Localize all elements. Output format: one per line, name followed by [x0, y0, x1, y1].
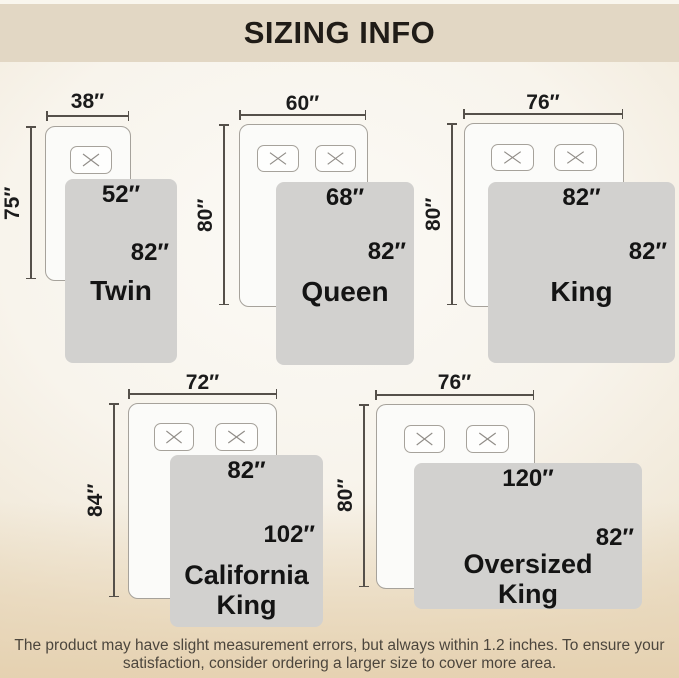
page-title: SIZING INFO	[244, 15, 436, 51]
blanket-length-label: 82″	[368, 238, 406, 265]
pillow-icon	[154, 423, 194, 451]
length-dimension-line	[451, 123, 453, 305]
sizing-info-infographic: SIZING INFO 38″ 75″ 52″ 82″ Twin 60″ 80″…	[0, 0, 679, 678]
blanket-width-label: 68″	[276, 184, 414, 211]
dim-tick	[359, 586, 369, 588]
dim-tick	[447, 304, 457, 306]
size-name-label: Queen	[276, 276, 414, 308]
bed-width-label: 38″	[46, 89, 129, 115]
dim-tick	[128, 111, 130, 121]
pillow-icon	[404, 425, 445, 453]
bed-length-label: 80″	[193, 185, 219, 245]
blanket-length-label: 82″	[596, 524, 634, 551]
size-name-label: King	[488, 276, 675, 308]
blanket-width-label: 82″	[488, 184, 675, 211]
size-name-label: Oversized King	[414, 549, 642, 609]
pillow-icon	[491, 144, 534, 171]
pillow-icon	[215, 423, 258, 451]
width-dimension-line	[128, 393, 277, 395]
blanket: 82″ 102″ California King	[170, 455, 323, 627]
dim-tick	[109, 403, 119, 405]
length-dimension-line	[30, 126, 32, 279]
blanket: 52″ 82″ Twin	[65, 179, 177, 363]
disclaimer: The product may have slight measurement …	[0, 637, 679, 672]
pillow-icon	[257, 145, 299, 172]
dim-tick	[46, 111, 48, 121]
size-name-label: California King	[170, 560, 323, 620]
blanket: 68″ 82″ Queen	[276, 182, 414, 365]
dim-tick	[128, 389, 130, 399]
pillow-icon	[554, 144, 597, 171]
dim-tick	[447, 123, 457, 125]
header-band: SIZING INFO	[0, 4, 679, 62]
blanket-width-label: 52″	[65, 181, 177, 208]
blanket-length-label: 82″	[629, 238, 667, 265]
dim-tick	[276, 389, 278, 399]
dim-tick	[533, 390, 535, 400]
length-dimension-line	[363, 404, 365, 587]
width-dimension-line	[239, 114, 366, 116]
pillow-icon	[466, 425, 509, 453]
blanket: 82″ 82″ King	[488, 182, 675, 363]
dim-tick	[26, 126, 36, 128]
width-dimension-line	[375, 394, 534, 396]
dim-tick	[622, 109, 624, 119]
blanket-length-label: 82″	[131, 239, 169, 266]
width-dimension-line	[46, 115, 129, 117]
bed-length-label: 80″	[333, 465, 359, 525]
disclaimer-line-2: satisfaction, consider ordering a larger…	[0, 655, 679, 673]
dim-tick	[109, 596, 119, 598]
dim-tick	[219, 124, 229, 126]
dim-tick	[365, 110, 367, 120]
bed-length-label: 80″	[421, 184, 447, 244]
bed-width-label: 76″	[375, 370, 534, 396]
bed-length-label: 75″	[0, 173, 26, 233]
blanket-width-label: 120″	[414, 465, 642, 492]
dim-tick	[463, 109, 465, 119]
dim-tick	[239, 110, 241, 120]
bed-length-label: 84″	[83, 470, 109, 530]
dim-tick	[375, 390, 377, 400]
pillow-icon	[70, 146, 112, 174]
size-name-label: Twin	[65, 275, 177, 307]
length-dimension-line	[223, 124, 225, 305]
dim-tick	[359, 404, 369, 406]
dim-tick	[219, 304, 229, 306]
pillow-icon	[315, 145, 356, 172]
dim-tick	[26, 278, 36, 280]
disclaimer-line-1: The product may have slight measurement …	[0, 637, 679, 655]
width-dimension-line	[463, 113, 623, 115]
blanket-length-label: 102″	[263, 521, 315, 548]
blanket: 120″ 82″ Oversized King	[414, 463, 642, 609]
blanket-width-label: 82″	[170, 457, 323, 484]
length-dimension-line	[113, 403, 115, 597]
